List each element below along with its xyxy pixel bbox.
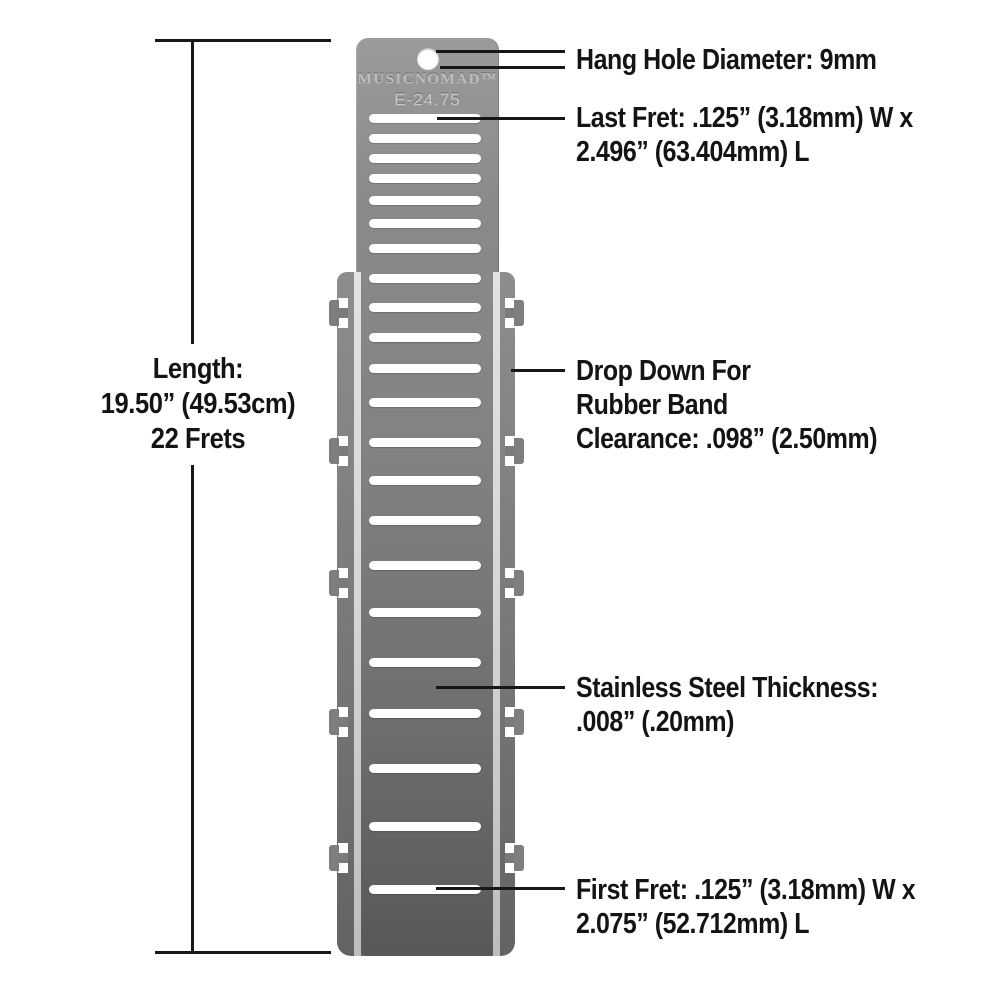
dimension-cap-top	[155, 39, 331, 42]
edge-stripe-left	[354, 272, 361, 956]
drop-down-line3: Clearance: .098” (2.50mm)	[576, 422, 877, 456]
fret-slot	[369, 196, 481, 205]
fret-slot	[369, 134, 481, 143]
notch-tab	[338, 308, 348, 318]
dimension-cap-bottom	[155, 951, 331, 954]
side-notch	[505, 843, 524, 873]
first-fret-annotation: First Fret: .125” (3.18mm) W x 2.075” (5…	[576, 873, 915, 941]
notch-tab	[338, 578, 348, 588]
thickness-annotation: Stainless Steel Thickness: .008” (.20mm)	[576, 671, 878, 739]
side-notch	[329, 568, 348, 598]
notch-bump	[329, 709, 339, 735]
fret-slot	[369, 561, 481, 570]
brand-engraving: MUSICNOMAD™	[356, 71, 499, 88]
notch-bump	[329, 570, 339, 596]
fret-slot	[369, 608, 481, 617]
leader-line-hang-hole-bottom	[440, 66, 565, 69]
notch-bump	[514, 300, 524, 326]
fret-slot	[369, 822, 481, 831]
notch-bump	[514, 709, 524, 735]
fret-slot	[369, 154, 481, 163]
thickness-line1: Stainless Steel Thickness:	[576, 671, 878, 705]
thickness-line2: .008” (.20mm)	[576, 705, 878, 739]
fret-slot	[369, 764, 481, 773]
last-fret-line1: Last Fret: .125” (3.18mm) W x	[576, 101, 913, 135]
length-title: Length:	[96, 352, 300, 387]
fret-slot	[369, 274, 481, 283]
fret-slot	[369, 398, 481, 407]
leader-line-drop-down	[511, 369, 565, 372]
length-annotation: Length: 19.50” (49.53cm) 22 Frets	[96, 344, 300, 465]
fret-count-label: 22 Frets	[96, 422, 300, 457]
fret-slot	[369, 244, 481, 253]
side-notch	[329, 436, 348, 466]
notch-tab	[338, 446, 348, 456]
notch-bump	[329, 300, 339, 326]
side-notch	[505, 707, 524, 737]
first-fret-line1: First Fret: .125” (3.18mm) W x	[576, 873, 915, 907]
first-fret-line2: 2.075” (52.712mm) L	[576, 907, 915, 941]
model-engraving: E-24.75	[356, 90, 499, 110]
fret-slot	[369, 658, 481, 667]
diagram-canvas: Length: 19.50” (49.53cm) 22 Frets MUSICN…	[0, 0, 1000, 1000]
fret-slot	[369, 333, 481, 342]
leader-line-thickness	[436, 686, 565, 689]
hang-hole-annotation: Hang Hole Diameter: 9mm	[576, 43, 877, 77]
side-notch	[505, 436, 524, 466]
drop-down-line2: Rubber Band	[576, 388, 877, 422]
dimension-line-vertical	[191, 39, 194, 954]
last-fret-annotation: Last Fret: .125” (3.18mm) W x 2.496” (63…	[576, 101, 913, 169]
fret-slot	[369, 438, 481, 447]
notch-bump	[514, 438, 524, 464]
drop-down-annotation: Drop Down For Rubber Band Clearance: .09…	[576, 354, 877, 456]
notch-tab	[338, 853, 348, 863]
leader-line-first-fret	[436, 887, 565, 890]
last-fret-line2: 2.496” (63.404mm) L	[576, 135, 913, 169]
notch-bump	[514, 570, 524, 596]
side-notch	[505, 568, 524, 598]
fret-slot	[369, 364, 481, 373]
length-value: 19.50” (49.53cm)	[96, 387, 300, 422]
drop-down-line1: Drop Down For	[576, 354, 877, 388]
side-notch	[505, 298, 524, 328]
side-notch	[329, 843, 348, 873]
fret-slot	[369, 303, 481, 312]
notch-bump	[329, 845, 339, 871]
notch-tab	[338, 717, 348, 727]
leader-line-last-fret	[437, 117, 565, 120]
fret-slot	[369, 174, 481, 183]
fret-slot	[369, 476, 481, 485]
side-notch	[329, 298, 348, 328]
leader-line-hang-hole-top	[436, 50, 565, 53]
fret-slot	[369, 219, 481, 228]
fret-slot	[369, 709, 481, 718]
notch-bump	[514, 845, 524, 871]
fret-slot	[369, 516, 481, 525]
edge-stripe-right	[493, 272, 500, 956]
notch-bump	[329, 438, 339, 464]
side-notch	[329, 707, 348, 737]
